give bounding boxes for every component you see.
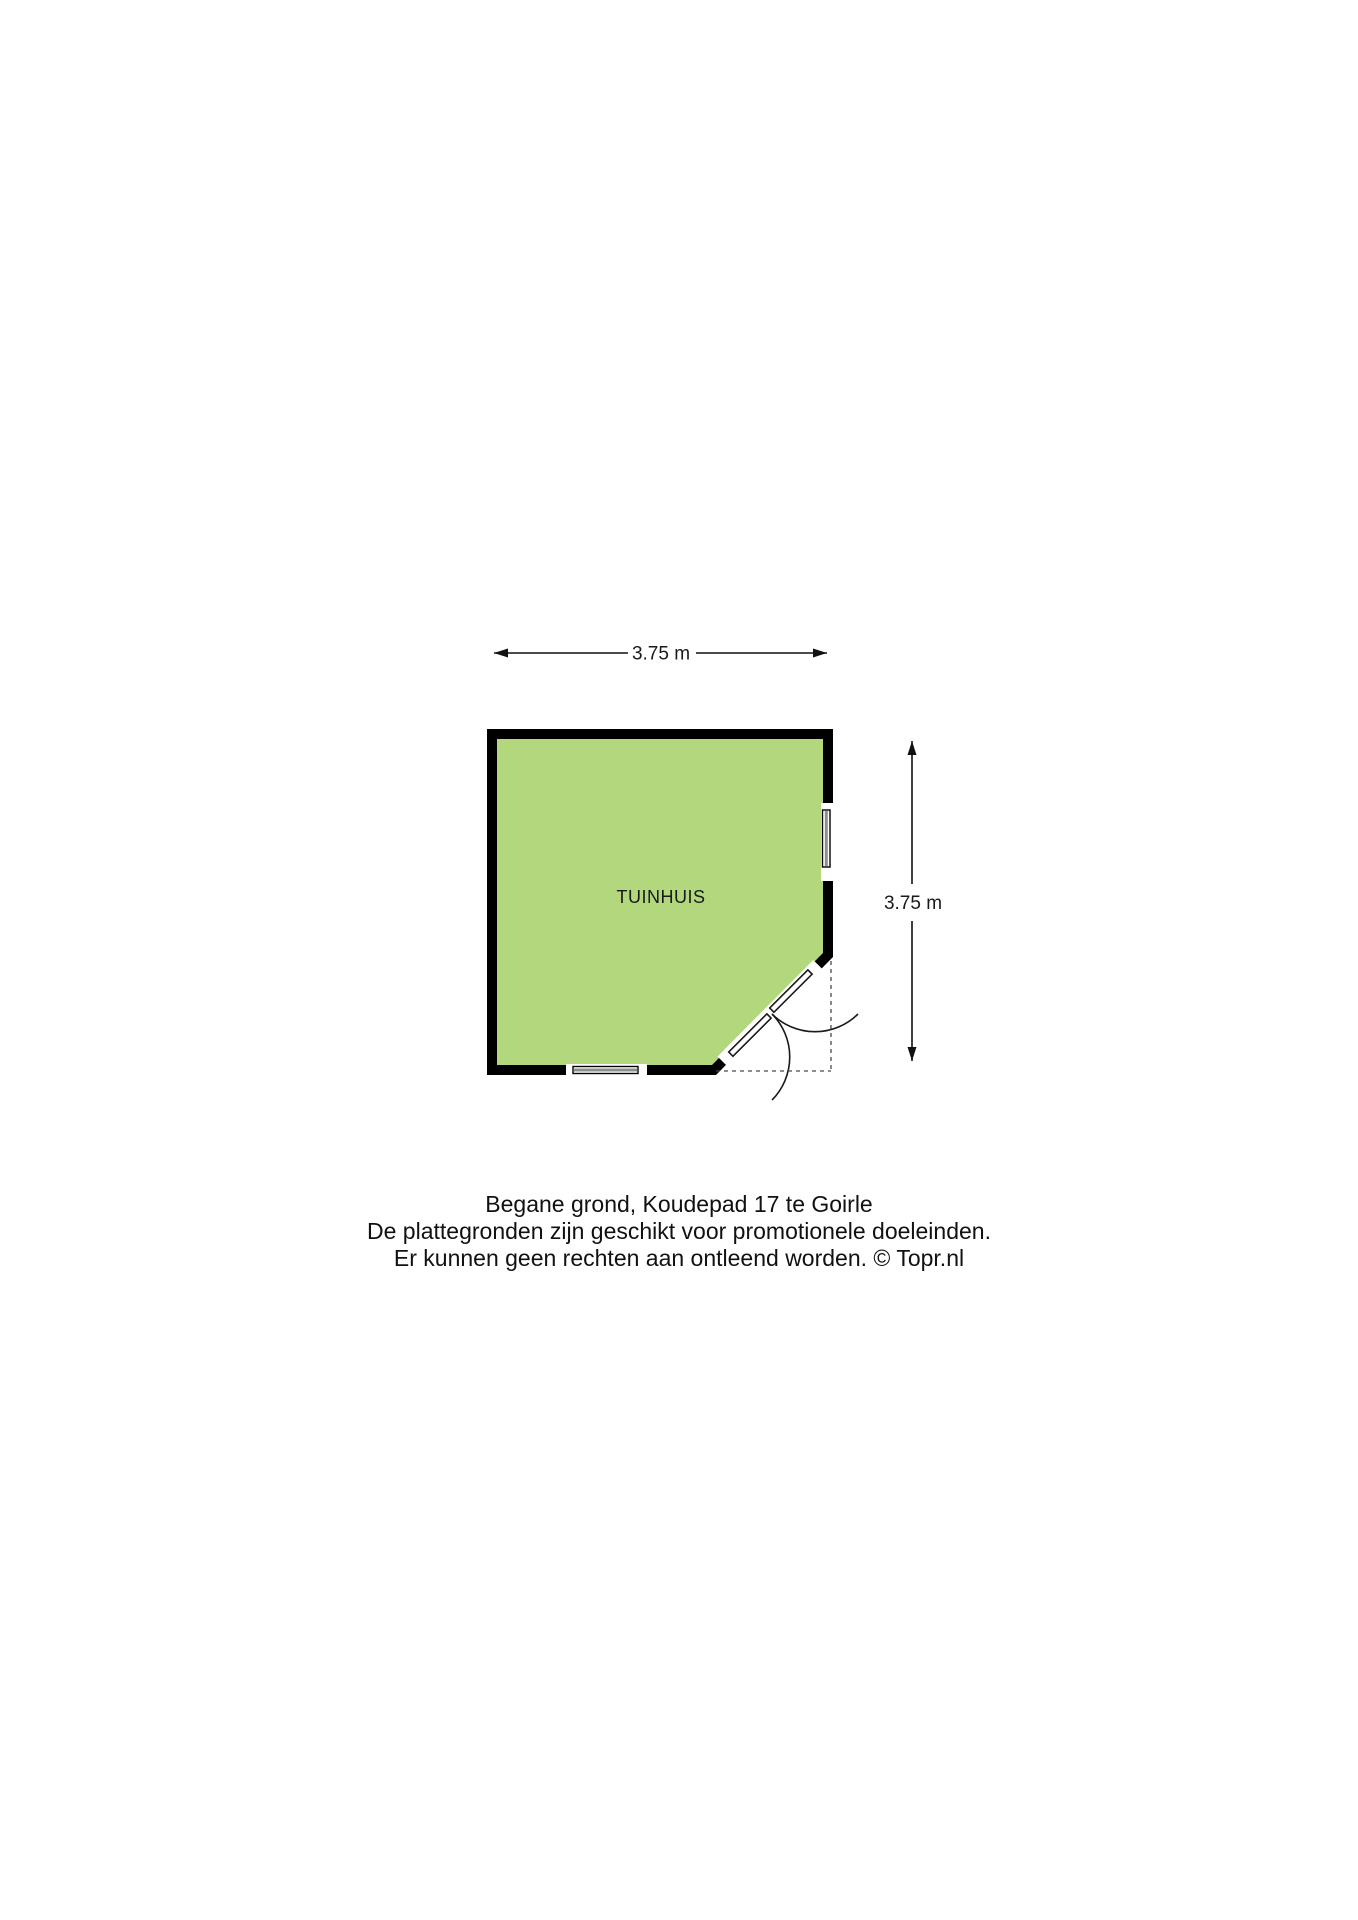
dimension-height: 3.75 m [884, 741, 942, 1061]
window-bottom-icon [566, 1064, 647, 1076]
floorplan-page: TUINHUIS 3.75 m 3.75 m Begane grond, Kou… [0, 0, 1358, 1920]
arrow-down-icon [908, 1047, 917, 1061]
caption-disclaimer-2: Er kunnen geen rechten aan ontleend word… [0, 1245, 1358, 1272]
arrow-up-icon [908, 741, 917, 755]
window-right-icon [821, 803, 834, 881]
caption-title: Begane grond, Koudepad 17 te Goirle [0, 1191, 1358, 1218]
arrow-left-icon [494, 649, 508, 658]
caption-disclaimer-1: De plattegronden zijn geschikt voor prom… [0, 1218, 1358, 1245]
dimension-width: 3.75 m [494, 644, 827, 665]
arrow-right-icon [813, 649, 827, 658]
dimension-width-label: 3.75 m [632, 644, 690, 665]
dimension-height-label: 3.75 m [884, 893, 942, 914]
room-name-label: TUINHUIS [617, 887, 706, 907]
floorplan-drawing: TUINHUIS 3.75 m 3.75 m [0, 0, 1358, 1920]
caption: Begane grond, Koudepad 17 te Goirle De p… [0, 1191, 1358, 1272]
